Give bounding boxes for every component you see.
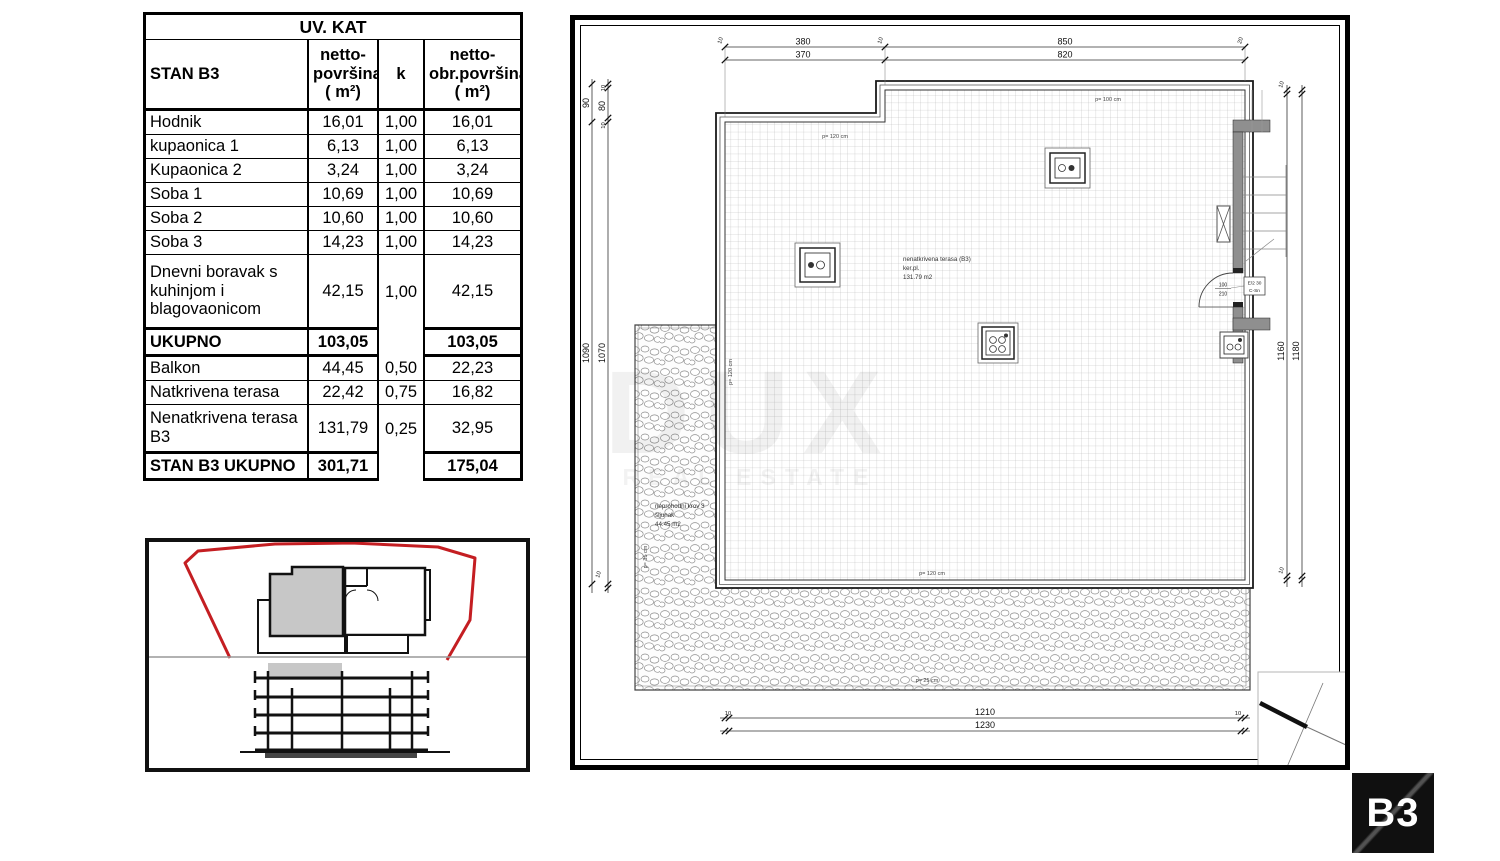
dim-label: 1160 xyxy=(1276,341,1286,360)
table-row: Soba 2 10,60 1,00 10,60 xyxy=(146,207,520,231)
total-label: UKUPNO xyxy=(146,330,309,357)
row-netto: 131,79 xyxy=(309,405,379,454)
floor-plan-panel: DUX REAL ESTATE xyxy=(570,15,1350,770)
key-plan-panel xyxy=(145,538,530,772)
table-title-row: UV. KAT xyxy=(146,15,520,40)
row-k: 1,00 xyxy=(379,111,425,135)
row-k: 0,75 xyxy=(379,381,425,405)
row-obr: 32,95 xyxy=(425,405,520,454)
table-row: kupaonica 1 6,13 1,00 6,13 xyxy=(146,135,520,159)
watermark-subtext: REAL ESTATE xyxy=(623,464,878,490)
roof-label: neprohodni krov 3 xyxy=(655,503,705,510)
row-obr: 16,82 xyxy=(425,381,520,405)
building-elevation xyxy=(240,663,450,758)
table-row: Nenatkrivena terasa B3 131,79 0,25 32,95 xyxy=(146,405,520,454)
unit-b3-highlight-plan xyxy=(270,567,343,636)
dim-label: 1210 xyxy=(975,707,995,717)
row-obr: 22,23 xyxy=(425,357,520,381)
dim-label: 1090 xyxy=(581,343,591,363)
dim-label: 10 xyxy=(601,85,607,91)
terrace-label: nenatkrivena terasa (B3) xyxy=(903,256,971,263)
parapet-height-label: p= 120 cm xyxy=(919,571,945,577)
parapet-height-label: p= 100 cm xyxy=(1095,97,1121,103)
total-netto: 103,05 xyxy=(309,330,379,357)
dim-label: 370 xyxy=(795,50,810,60)
roof-material-label: šljunak xyxy=(655,512,675,519)
terrace-area-label: 131.79 m2 xyxy=(903,274,933,281)
watermark-text: DUX xyxy=(604,347,895,479)
dim-label: 90 xyxy=(581,98,591,108)
grand-total-label: STAN B3 UKUPNO xyxy=(146,454,309,481)
site-plan-top-view xyxy=(185,543,475,660)
row-k: 0,25 xyxy=(379,405,425,454)
dim-label: 1070 xyxy=(597,343,607,363)
dim-label: 10 xyxy=(601,122,607,128)
total-k-empty xyxy=(379,330,425,357)
unit-badge: B3 xyxy=(1352,773,1434,853)
table-header-row: STAN B3 netto- površina ( m²) k netto- o… xyxy=(146,40,520,111)
header-stan: STAN B3 xyxy=(146,40,309,111)
row-netto: 22,42 xyxy=(309,381,379,405)
total-obr: 103,05 xyxy=(425,330,520,357)
row-netto: 3,24 xyxy=(309,159,379,183)
grand-total-k-empty xyxy=(379,454,425,481)
row-netto: 10,60 xyxy=(309,207,379,231)
header-k: k xyxy=(379,40,425,111)
dim-label: 1180 xyxy=(1291,341,1301,360)
row-name: Hodnik xyxy=(146,111,309,135)
skylight xyxy=(978,323,1018,363)
dim-label: 1230 xyxy=(975,720,995,730)
skylight xyxy=(795,243,840,287)
row-k: 1,00 xyxy=(379,255,425,330)
row-name: Balkon xyxy=(146,357,309,381)
header-obr: netto- obr.površina ( m²) xyxy=(425,40,520,111)
chimney-shaft xyxy=(1217,206,1230,242)
row-name: Soba 1 xyxy=(146,183,309,207)
row-netto: 44,45 xyxy=(309,357,379,381)
row-netto: 42,15 xyxy=(309,255,379,330)
floor-plan-drawing: DUX REAL ESTATE xyxy=(570,15,1350,770)
dim-label: 380 xyxy=(795,37,810,47)
row-obr: 10,60 xyxy=(425,207,520,231)
door-mark-line1: E/2 30 xyxy=(1248,281,1262,287)
row-k: 1,00 xyxy=(379,183,425,207)
skylight xyxy=(1220,332,1248,358)
dim-label: 820 xyxy=(1057,50,1072,60)
parapet-height-label: p= 120 cm xyxy=(822,134,848,140)
door-mark-line2: C-Sn xyxy=(1249,288,1260,294)
unit-badge-label: B3 xyxy=(1366,791,1419,836)
row-obr: 10,69 xyxy=(425,183,520,207)
row-obr: 16,01 xyxy=(425,111,520,135)
row-netto: 14,23 xyxy=(309,231,379,255)
dim-label: 80 xyxy=(597,101,607,111)
building-outline xyxy=(345,568,425,635)
door-height-label: 210 xyxy=(1219,292,1228,298)
row-name: Soba 2 xyxy=(146,207,309,231)
table-row: Soba 1 10,69 1,00 10,69 xyxy=(146,183,520,207)
table-row: Hodnik 16,01 1,00 16,01 xyxy=(146,111,520,135)
table-row: Balkon 44,45 0,50 22,23 xyxy=(146,357,520,381)
table-title: UV. KAT xyxy=(146,15,520,40)
table-row: Kupaonica 2 3,24 1,00 3,24 xyxy=(146,159,520,183)
key-plan-drawing xyxy=(149,542,526,768)
row-obr: 42,15 xyxy=(425,255,520,330)
parapet-height-label: p= 35 cm xyxy=(643,545,649,568)
dim-label: 10 xyxy=(1235,711,1241,717)
row-k: 1,00 xyxy=(379,135,425,159)
table-row: Natkrivena terasa 22,42 0,75 16,82 xyxy=(146,381,520,405)
door-width-label: 100 xyxy=(1219,283,1228,289)
dim-label: 10 xyxy=(725,711,731,717)
table-row: Soba 3 14,23 1,00 14,23 xyxy=(146,231,520,255)
slope-symbol xyxy=(1258,672,1347,767)
building-base xyxy=(265,753,417,758)
row-name: Nenatkrivena terasa B3 xyxy=(146,405,309,454)
terrace-finish-label: ker.pl. xyxy=(903,265,920,272)
roof-area-label: 44.45 m2 xyxy=(655,521,681,528)
table-row: Dnevni boravak s kuhinjom i blagovaonico… xyxy=(146,255,520,330)
row-k: 0,50 xyxy=(379,357,425,381)
grand-total-netto: 301,71 xyxy=(309,454,379,481)
skylight xyxy=(1045,148,1090,188)
row-name: Natkrivena terasa xyxy=(146,381,309,405)
row-obr: 3,24 xyxy=(425,159,520,183)
row-netto: 6,13 xyxy=(309,135,379,159)
row-name: Kupaonica 2 xyxy=(146,159,309,183)
parapet-height-label: p= 120 cm xyxy=(728,359,734,385)
row-name: Dnevni boravak s kuhinjom i blagovaonico… xyxy=(146,255,309,330)
header-netto: netto- površina ( m²) xyxy=(309,40,379,111)
row-k: 1,00 xyxy=(379,207,425,231)
row-obr: 6,13 xyxy=(425,135,520,159)
row-name: kupaonica 1 xyxy=(146,135,309,159)
building-outline xyxy=(347,635,408,653)
row-netto: 16,01 xyxy=(309,111,379,135)
watermark: DUX REAL ESTATE xyxy=(604,347,895,490)
dim-label: 850 xyxy=(1057,37,1072,47)
row-obr: 14,23 xyxy=(425,231,520,255)
area-table-panel: UV. KAT STAN B3 netto- površina ( m²) k … xyxy=(143,12,523,481)
row-name: Soba 3 xyxy=(146,231,309,255)
row-netto: 10,69 xyxy=(309,183,379,207)
parapet-height-label: p= 25 cm xyxy=(916,678,939,684)
grand-total-obr: 175,04 xyxy=(425,454,520,481)
total-row: UKUPNO 103,05 103,05 xyxy=(146,330,520,357)
area-table: UV. KAT STAN B3 netto- površina ( m²) k … xyxy=(143,12,523,481)
grand-total-row: STAN B3 UKUPNO 301,71 175,04 xyxy=(146,454,520,481)
row-k: 1,00 xyxy=(379,159,425,183)
row-k: 1,00 xyxy=(379,231,425,255)
